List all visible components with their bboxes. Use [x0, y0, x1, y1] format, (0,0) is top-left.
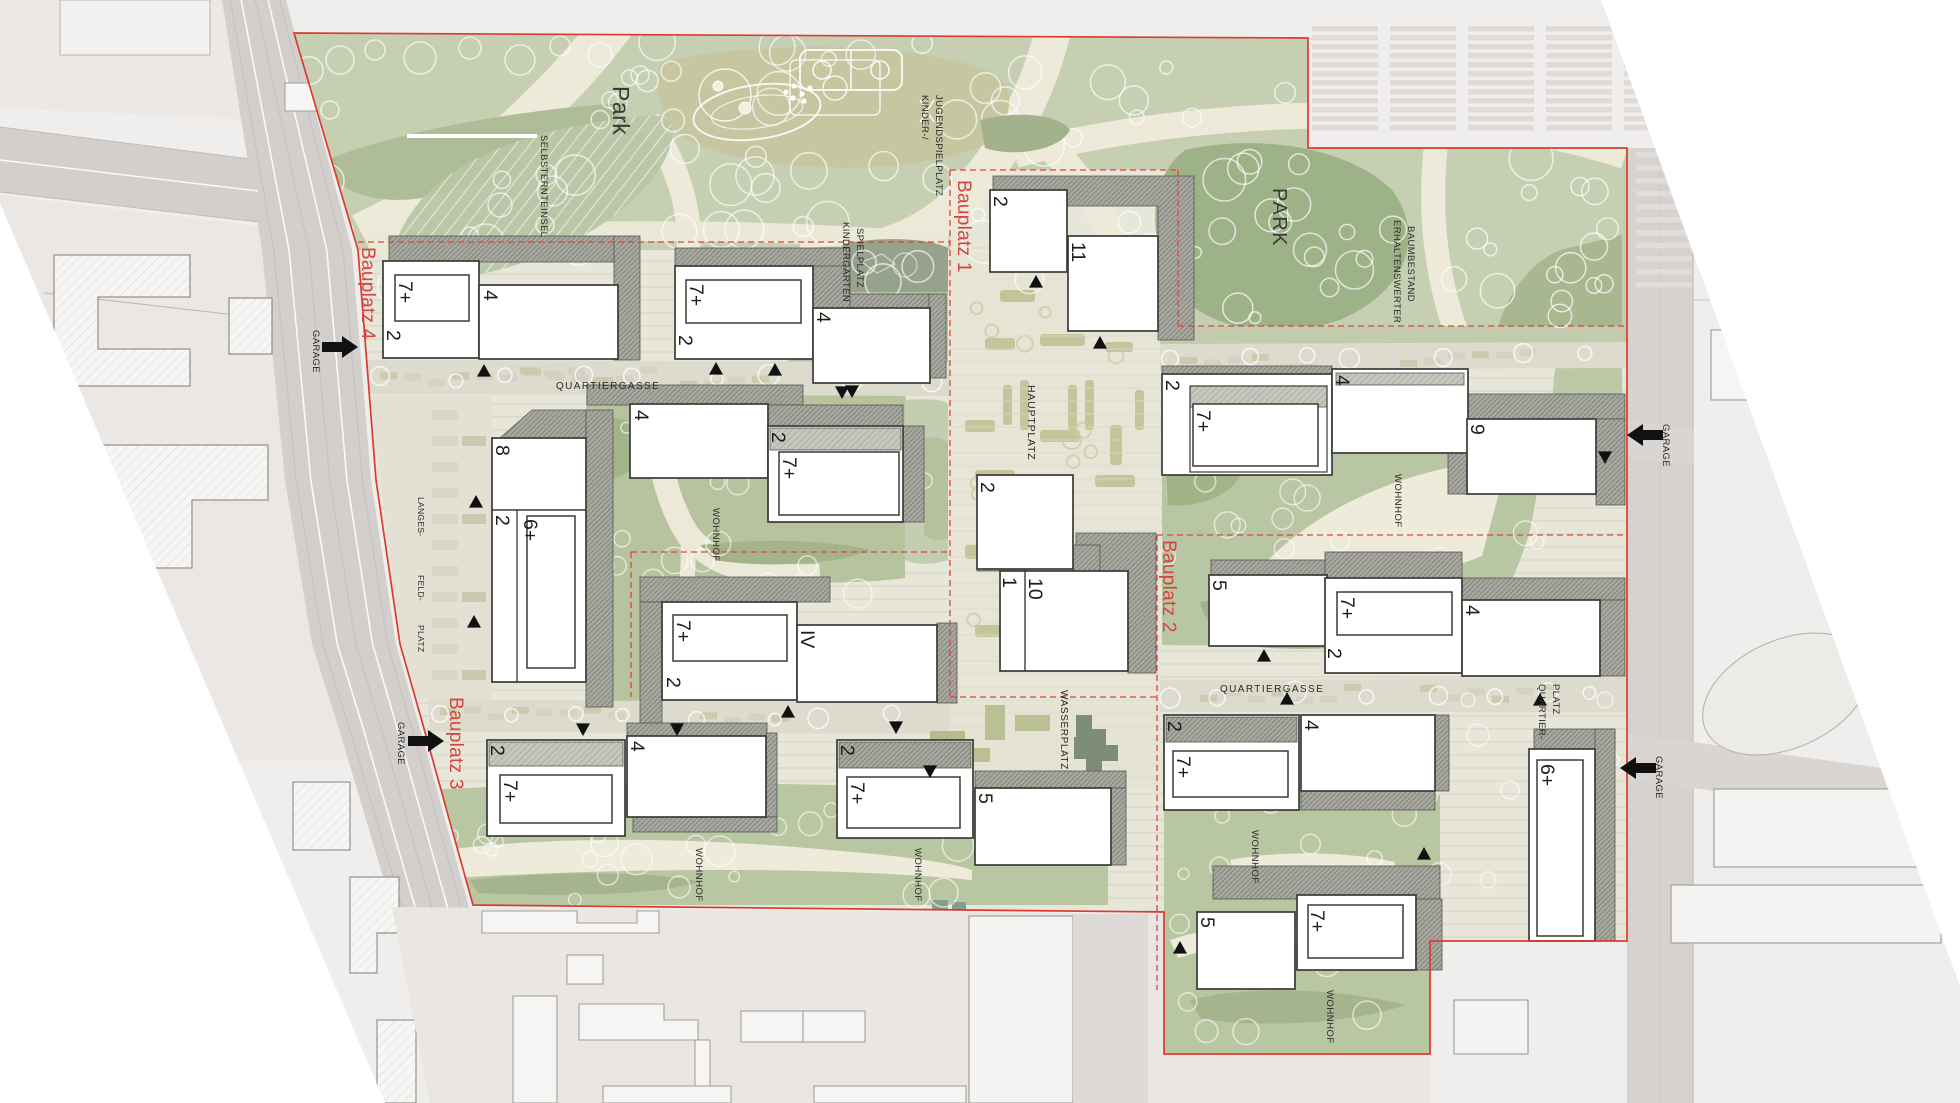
- svg-text:7+: 7+: [394, 281, 416, 303]
- svg-text:6+: 6+: [519, 519, 541, 541]
- svg-text:8: 8: [491, 445, 513, 456]
- svg-text:Bauplatz 2: Bauplatz 2: [1158, 540, 1179, 633]
- svg-text:2: 2: [674, 335, 696, 346]
- svg-text:QUARTIERGASSE: QUARTIERGASSE: [556, 381, 660, 392]
- svg-text:Bauplatz 4: Bauplatz 4: [357, 247, 378, 340]
- svg-text:2: 2: [486, 745, 508, 756]
- svg-text:QUARTIERGASSE: QUARTIERGASSE: [1220, 684, 1324, 695]
- svg-text:4: 4: [479, 290, 501, 301]
- svg-text:2: 2: [1163, 721, 1185, 732]
- svg-text:JUGENDSPIELPLATZ: JUGENDSPIELPLATZ: [933, 95, 944, 196]
- svg-text:WOHNHOF: WOHNHOF: [1392, 474, 1403, 528]
- svg-text:SELBSTERNTEINSEL: SELBSTERNTEINSEL: [538, 135, 549, 238]
- svg-text:IV: IV: [796, 630, 818, 648]
- svg-text:9: 9: [1466, 424, 1488, 435]
- svg-text:Park: Park: [608, 86, 634, 135]
- svg-text:7+: 7+: [499, 780, 521, 802]
- svg-text:1: 1: [998, 577, 1020, 588]
- svg-text:WASSERPLATZ: WASSERPLATZ: [1058, 690, 1069, 770]
- svg-text:2: 2: [382, 330, 404, 341]
- svg-text:7+: 7+: [1336, 597, 1358, 619]
- svg-text:7+: 7+: [778, 457, 800, 479]
- svg-text:WOHNHOF: WOHNHOF: [693, 848, 704, 902]
- svg-text:11: 11: [1067, 242, 1089, 262]
- svg-text:Bauplatz 1: Bauplatz 1: [953, 180, 974, 273]
- svg-text:2: 2: [767, 432, 789, 443]
- svg-text:LANGES-: LANGES-: [416, 497, 426, 536]
- svg-text:WOHNHOF: WOHNHOF: [710, 508, 721, 562]
- svg-text:2: 2: [989, 196, 1011, 207]
- svg-text:GARAGE: GARAGE: [395, 722, 406, 765]
- svg-text:2: 2: [491, 515, 513, 526]
- svg-text:2: 2: [1323, 648, 1345, 659]
- svg-text:WOHNHOF: WOHNHOF: [912, 848, 923, 902]
- svg-text:FELD-: FELD-: [416, 575, 426, 601]
- svg-text:7+: 7+: [1192, 410, 1214, 432]
- svg-text:ERHALTENSWERTER: ERHALTENSWERTER: [1391, 220, 1402, 323]
- svg-text:PLATZ: PLATZ: [416, 625, 426, 652]
- svg-text:10: 10: [1024, 578, 1046, 600]
- svg-text:2: 2: [662, 677, 684, 688]
- svg-text:5: 5: [1196, 917, 1218, 928]
- svg-text:PLATZ: PLATZ: [1550, 684, 1561, 715]
- svg-text:2: 2: [1161, 380, 1183, 391]
- svg-text:2: 2: [976, 482, 998, 493]
- svg-text:7+: 7+: [685, 284, 707, 306]
- svg-text:4: 4: [812, 312, 834, 323]
- svg-text:WOHNHOF: WOHNHOF: [1324, 990, 1335, 1044]
- svg-text:KINDER-/: KINDER-/: [919, 95, 930, 140]
- svg-text:GARAGE: GARAGE: [310, 330, 321, 373]
- svg-text:GARAGE: GARAGE: [1653, 756, 1664, 799]
- svg-text:5: 5: [1208, 580, 1230, 591]
- svg-text:6+: 6+: [1536, 764, 1558, 786]
- svg-text:KINDERGARTEN: KINDERGARTEN: [840, 222, 851, 302]
- svg-text:2: 2: [836, 745, 858, 756]
- svg-text:QUARTIER-: QUARTIER-: [1536, 684, 1547, 740]
- svg-text:4: 4: [1300, 720, 1322, 731]
- svg-text:7+: 7+: [846, 782, 868, 804]
- svg-text:4: 4: [1331, 375, 1353, 386]
- svg-text:7+: 7+: [1306, 910, 1328, 932]
- svg-text:PARK: PARK: [1268, 188, 1290, 247]
- svg-text:4: 4: [630, 410, 652, 421]
- svg-text:GARAGE: GARAGE: [1660, 424, 1671, 467]
- svg-text:4: 4: [626, 741, 648, 752]
- svg-text:HAUPTPLATZ: HAUPTPLATZ: [1025, 385, 1037, 460]
- svg-text:BAUMBESTAND: BAUMBESTAND: [1405, 226, 1416, 302]
- svg-text:WOHNHOF: WOHNHOF: [1249, 830, 1260, 884]
- svg-text:7+: 7+: [672, 620, 694, 642]
- svg-text:7+: 7+: [1172, 756, 1194, 778]
- svg-text:SPIELPLATZ: SPIELPLATZ: [854, 228, 865, 288]
- svg-text:Bauplatz 3: Bauplatz 3: [445, 697, 466, 790]
- svg-text:4: 4: [1461, 605, 1483, 616]
- svg-text:5: 5: [974, 793, 996, 804]
